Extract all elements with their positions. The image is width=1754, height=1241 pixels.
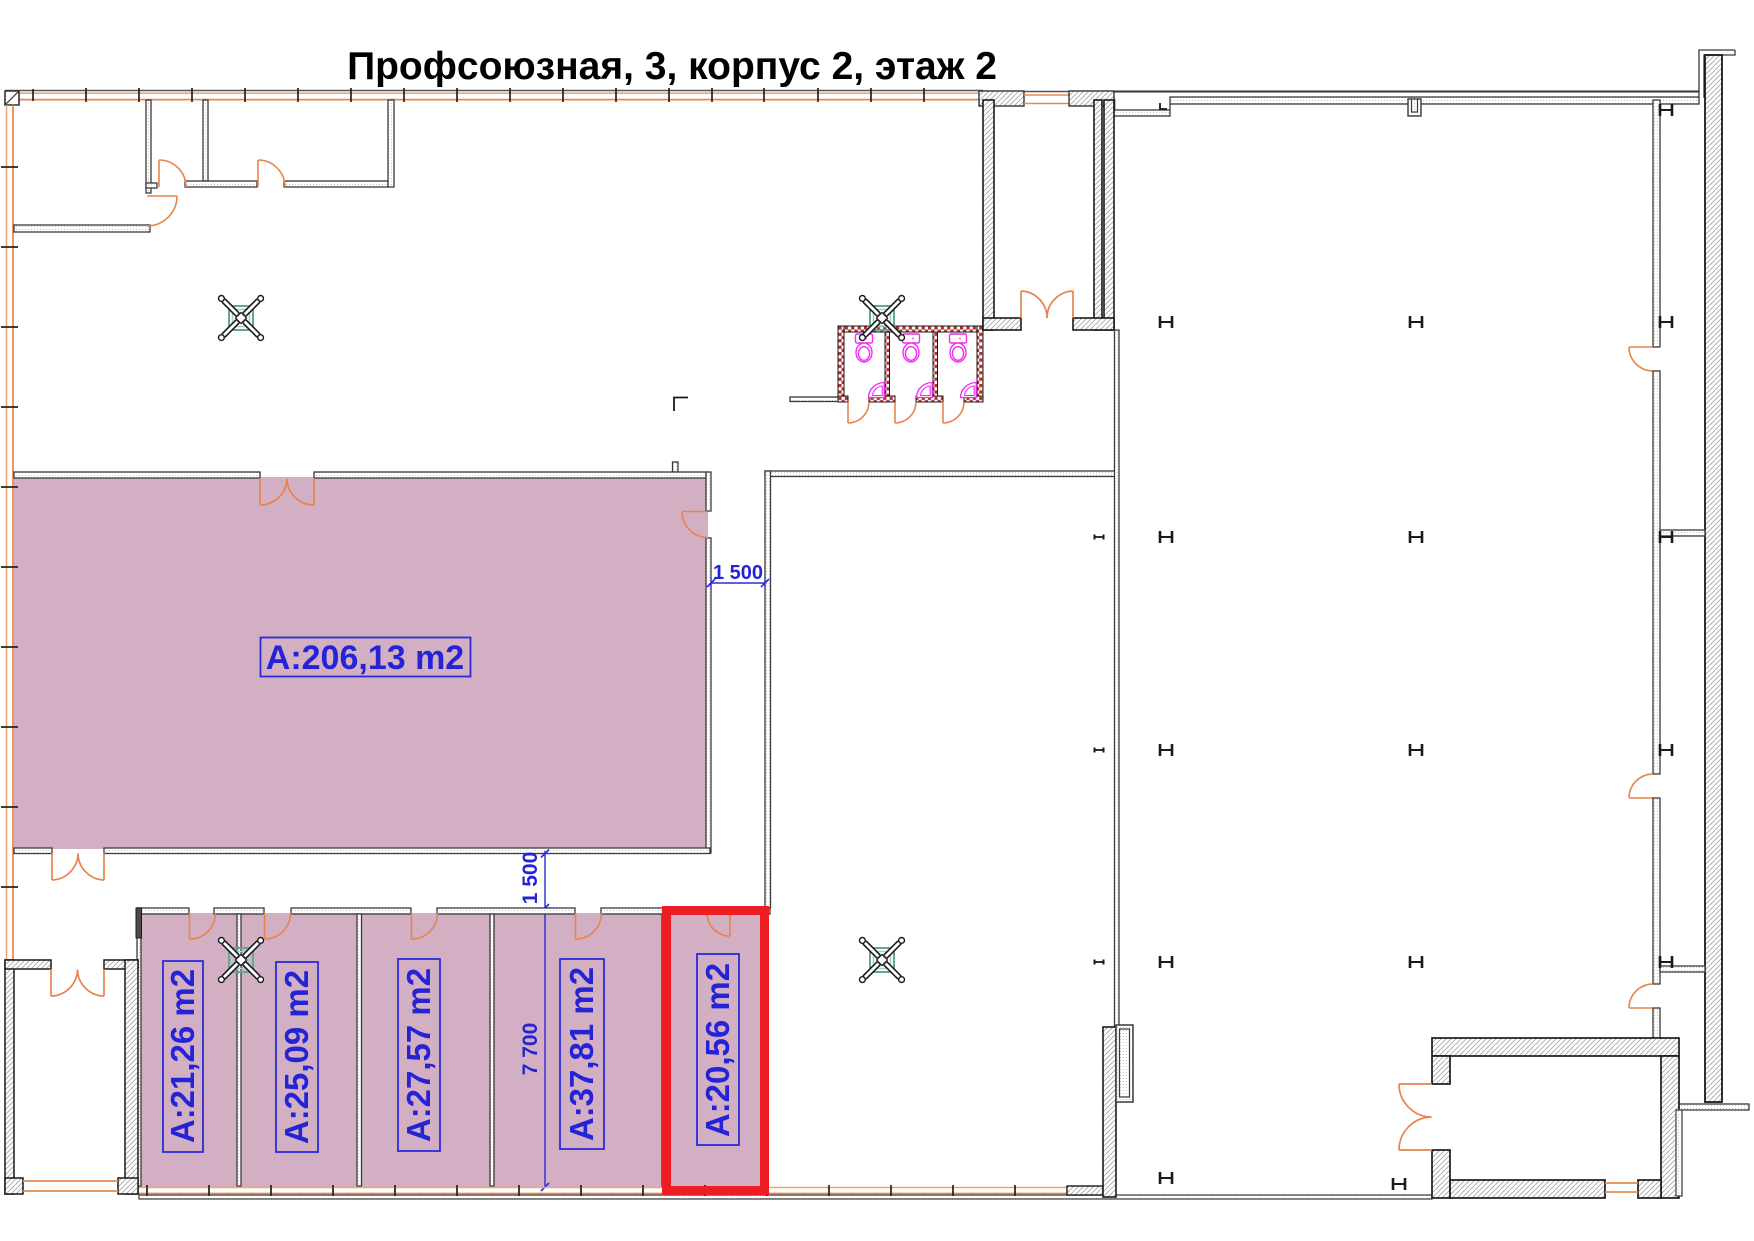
svg-text:A:206,13 m2: A:206,13 m2 bbox=[266, 639, 464, 677]
svg-text:A:25,09 m2: A:25,09 m2 bbox=[278, 970, 315, 1144]
svg-text:Профсоюзная, 3, корпус 2, этаж: Профсоюзная, 3, корпус 2, этаж 2 bbox=[347, 45, 997, 88]
svg-text:7 700: 7 700 bbox=[519, 1023, 542, 1076]
svg-text:A:27,57 m2: A:27,57 m2 bbox=[400, 968, 437, 1142]
svg-text:A:37,81 m2: A:37,81 m2 bbox=[563, 967, 600, 1141]
svg-text:1 500: 1 500 bbox=[713, 562, 763, 584]
svg-text:A:21,26 m2: A:21,26 m2 bbox=[164, 969, 201, 1143]
svg-text:A:20,56 m2: A:20,56 m2 bbox=[699, 963, 736, 1137]
svg-text:1 500: 1 500 bbox=[519, 852, 542, 905]
